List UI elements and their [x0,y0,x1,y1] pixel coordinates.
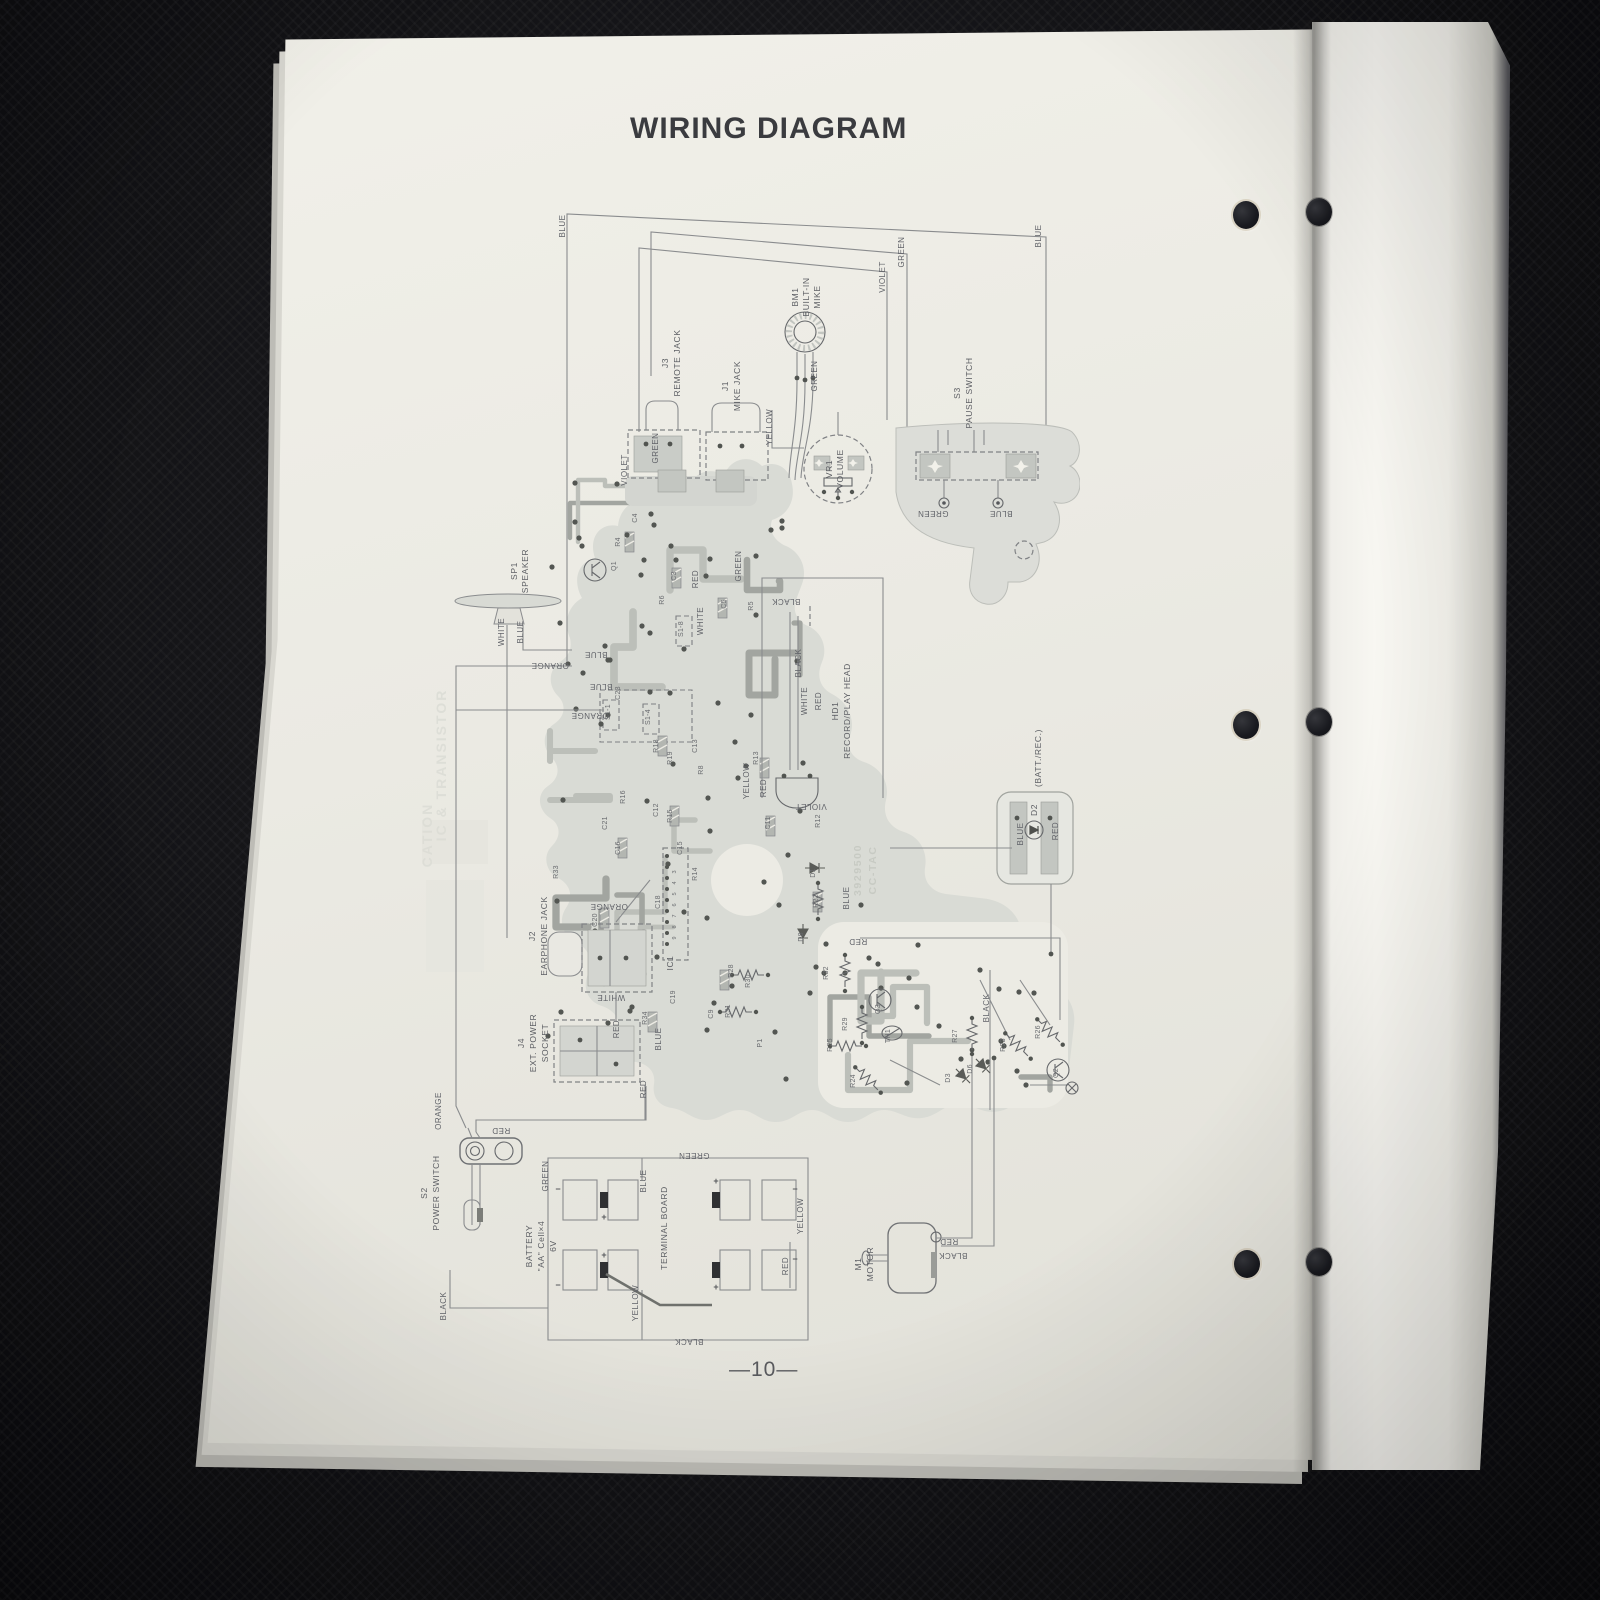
svg-text:BLUE: BLUE [558,215,567,238]
svg-text:+: + [601,1212,606,1222]
svg-text:−: − [792,1254,797,1264]
svg-text:RED: RED [691,570,700,588]
svg-text:IC & TRANSISTOR: IC & TRANSISTOR [433,689,449,842]
svg-text:R12: R12 [815,814,822,828]
svg-text:S1-1: S1-1 [605,704,612,720]
svg-text:D6: D6 [967,1064,974,1074]
svg-text:8: 8 [672,925,678,928]
svg-text:BLACK: BLACK [794,648,803,677]
svg-text:5: 5 [672,892,678,895]
svg-text:VIOLET: VIOLET [878,261,887,292]
svg-text:C11: C11 [765,816,772,829]
svg-text:POWER SWITCH: POWER SWITCH [431,1155,441,1230]
svg-text:BLACK: BLACK [674,1337,703,1346]
svg-text:MIKE JACK: MIKE JACK [732,361,742,411]
svg-text:BLACK: BLACK [938,1251,967,1260]
svg-text:TH1: TH1 [885,1029,892,1043]
svg-text:+: + [601,1250,606,1260]
svg-text:C21: C21 [602,816,609,830]
svg-text:S3: S3 [952,387,962,399]
svg-text:YELLOW: YELLOW [765,409,774,445]
svg-text:R29: R29 [842,1017,849,1031]
svg-text:ORANGE: ORANGE [531,661,569,670]
svg-text:BLUE: BLUE [590,682,613,691]
svg-text:−: − [555,1280,560,1290]
svg-text:GREEN: GREEN [918,509,949,518]
svg-text:R13: R13 [753,751,760,765]
svg-text:R18: R18 [653,739,660,753]
svg-text:GREEN: GREEN [541,1161,550,1192]
svg-text:R34: R34 [642,1011,649,1025]
svg-text:3929500: 3929500 [852,844,864,896]
svg-text:BLUE: BLUE [516,621,525,644]
svg-text:R30: R30 [745,974,752,988]
built-in-mike-bm1 [785,312,825,480]
wiring-diagram: J3REMOTE JACKJ1MIKE JACKBM1BUILT-INMIKES… [420,180,1080,1360]
svg-text:PAUSE SWITCH: PAUSE SWITCH [964,357,974,428]
svg-text:BLACK: BLACK [439,1291,448,1320]
svg-text:BLUE: BLUE [654,1028,663,1051]
svg-text:RED: RED [1051,822,1060,840]
svg-text:J2: J2 [527,931,537,941]
svg-text:C5: C5 [721,599,728,609]
svg-text:CATION: CATION [420,803,435,868]
svg-text:RED: RED [612,1020,621,1038]
svg-text:3: 3 [672,870,678,873]
svg-text:R32: R32 [823,966,830,980]
svg-text:RED: RED [940,1237,958,1246]
svg-text:R24: R24 [850,1074,857,1088]
svg-text:WHITE: WHITE [800,687,809,715]
svg-text:Q1: Q1 [611,561,618,571]
svg-text:9: 9 [672,936,678,939]
svg-text:ORANGE: ORANGE [590,902,628,911]
svg-text:S1-4: S1-4 [645,709,652,725]
svg-text:WHITE: WHITE [696,607,705,635]
punch-hole-right-mid [1306,708,1332,736]
power-switch-s2 [460,1128,522,1230]
svg-text:BLACK: BLACK [771,597,800,606]
svg-text:BM1: BM1 [790,287,800,306]
svg-text:YELLOW: YELLOW [631,1285,640,1321]
manual-left-page: WIRING DIAGRAM [202,28,1314,1460]
page-number: —10— [729,1358,798,1382]
punch-hole-right-bottom [1306,1248,1332,1276]
svg-text:M1: M1 [853,1257,863,1270]
svg-text:R31: R31 [725,1004,732,1018]
svg-text:−: − [792,1184,797,1194]
battery-block [450,1158,808,1340]
svg-text:C23: C23 [615,686,622,700]
svg-text:D2: D2 [1029,804,1039,816]
svg-text:BLUE: BLUE [1016,823,1025,846]
svg-text:P1: P1 [757,1038,764,1047]
svg-text:S1-8: S1-8 [678,621,685,637]
svg-text:R22: R22 [813,894,820,908]
svg-text:C12: C12 [653,803,660,817]
svg-text:R4: R4 [615,537,622,547]
punch-hole-right-top [1306,198,1332,226]
svg-text:HD1: HD1 [830,702,840,721]
svg-text:"AA" Cell×4: "AA" Cell×4 [536,1221,546,1272]
svg-text:D3: D3 [945,1073,952,1083]
svg-text:+: + [713,1282,718,1292]
svg-text:GREEN: GREEN [651,433,660,464]
svg-text:C13: C13 [692,739,699,753]
svg-text:J3: J3 [660,358,670,368]
svg-text:RED: RED [759,779,768,797]
svg-text:R14: R14 [692,867,699,881]
svg-text:YELLOW: YELLOW [742,763,751,799]
punch-hole-left-mid [1233,711,1259,739]
svg-text:(BATT./REC.): (BATT./REC.) [1033,729,1043,787]
punch-hole-left-bottom [1234,1250,1260,1278]
svg-text:BLUE: BLUE [1034,225,1043,248]
svg-text:BATTERY: BATTERY [524,1225,534,1268]
svg-text:RED: RED [814,692,823,710]
svg-text:J1: J1 [720,381,730,391]
svg-text:BLUE: BLUE [585,650,608,659]
svg-text:C16: C16 [615,841,622,855]
svg-text:ORANGE: ORANGE [571,711,609,720]
svg-text:BLUE: BLUE [990,509,1013,518]
svg-text:6: 6 [672,903,678,906]
svg-text:R26: R26 [1035,1025,1042,1039]
svg-text:RED: RED [639,1080,648,1098]
svg-text:Q2: Q2 [1053,1068,1060,1078]
svg-text:VIOLET: VIOLET [620,454,629,485]
punch-hole-left-top [1233,201,1259,229]
svg-text:EXT. POWER: EXT. POWER [528,1014,538,1072]
photo-scene: { "scene": { "background_color": "#14141… [0,0,1600,1600]
svg-text:RED: RED [781,1257,790,1275]
svg-text:R8: R8 [698,765,705,775]
svg-text:4: 4 [672,881,678,884]
svg-text:+: + [713,1176,718,1186]
svg-text:BUILT-IN: BUILT-IN [801,277,811,316]
svg-text:C4: C4 [632,513,639,523]
svg-text:VIOLET: VIOLET [795,802,826,811]
svg-text:R6: R6 [659,595,666,605]
ext-power-socket-j4 [554,1020,645,1120]
svg-text:C20: C20 [592,913,599,927]
svg-text:Q3: Q3 [875,1004,882,1014]
svg-text:GREEN: GREEN [679,1151,710,1160]
svg-text:CC-TAC: CC-TAC [867,845,879,894]
svg-text:RECORD/PLAY HEAD: RECORD/PLAY HEAD [842,663,852,759]
svg-text:VOLUME: VOLUME [835,449,845,489]
svg-text:R33: R33 [553,865,560,879]
svg-text:6V: 6V [548,1240,558,1252]
svg-text:R25: R25 [827,1038,834,1052]
svg-text:C18: C18 [655,895,662,909]
svg-text:C9: C9 [708,1009,715,1019]
svg-text:−: − [555,1184,560,1194]
svg-text:D8: D8 [798,932,805,942]
svg-text:TERMINAL BOARD: TERMINAL BOARD [659,1186,669,1270]
svg-text:S2: S2 [420,1187,429,1199]
svg-text:IC1: IC1 [665,955,675,970]
svg-text:R5: R5 [748,601,755,611]
svg-text:MOTOR: MOTOR [865,1247,875,1281]
svg-text:R16: R16 [620,790,627,804]
svg-text:REMOTE JACK: REMOTE JACK [672,329,682,396]
svg-text:GREEN: GREEN [897,237,906,268]
svg-text:BLACK: BLACK [982,993,991,1022]
svg-text:R23: R23 [1000,1038,1007,1052]
svg-text:RED: RED [849,937,867,946]
svg-text:SP1: SP1 [509,562,519,580]
svg-text:RED: RED [492,1126,510,1135]
svg-text:R19: R19 [667,751,674,765]
svg-text:VR1: VR1 [824,460,834,478]
svg-text:GREEN: GREEN [734,551,743,582]
svg-text:C19: C19 [670,990,677,1004]
svg-text:D1: D1 [810,868,817,878]
svg-text:GREEN: GREEN [810,361,819,392]
svg-text:R27: R27 [952,1029,959,1043]
manual-right-page [1312,22,1512,1470]
svg-text:R15: R15 [667,809,674,823]
svg-text:ORANGE: ORANGE [434,1092,443,1130]
svg-text:C3: C3 [671,571,678,581]
svg-text:7: 7 [672,914,678,917]
svg-text:EARPHONE JACK: EARPHONE JACK [539,896,549,976]
svg-text:J4: J4 [516,1038,526,1048]
svg-text:WHITE: WHITE [497,618,506,646]
svg-text:BLUE: BLUE [639,1170,648,1193]
page-title: WIRING DIAGRAM [630,112,907,146]
svg-text:MIKE: MIKE [812,285,822,308]
svg-text:R28: R28 [728,964,735,978]
svg-text:C15: C15 [677,841,684,855]
svg-text:SOCKET: SOCKET [540,1024,550,1063]
svg-text:YELLOW: YELLOW [796,1198,805,1234]
svg-text:BLUE: BLUE [842,887,851,910]
svg-text:SPEAKER: SPEAKER [520,549,530,593]
svg-text:WHITE: WHITE [597,993,625,1002]
